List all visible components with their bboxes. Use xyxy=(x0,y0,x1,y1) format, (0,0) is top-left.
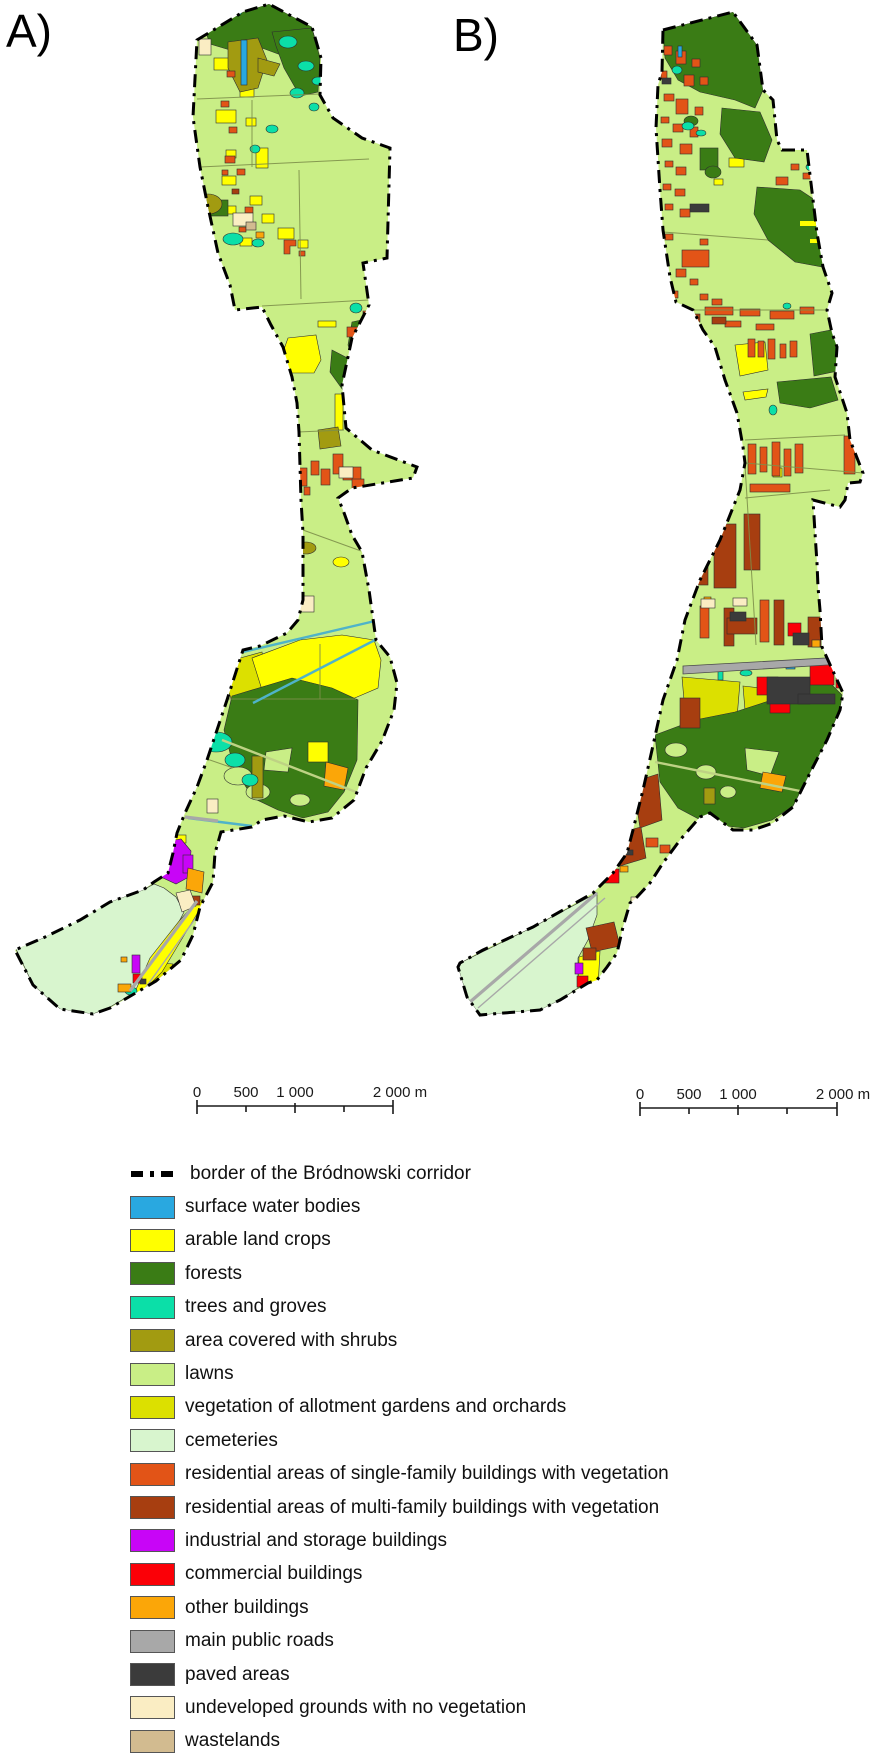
scalebar-b-1000: 1 000 xyxy=(719,1086,757,1103)
legend-item-roads: main public roads xyxy=(130,1624,669,1657)
legend-label: arable land crops xyxy=(185,1229,331,1251)
scalebar-a-0: 0 xyxy=(193,1084,201,1101)
legend-label: residential areas of multi-family buildi… xyxy=(185,1497,659,1519)
legend-swatch-single-family xyxy=(130,1463,175,1486)
legend-label: residential areas of single-family build… xyxy=(185,1463,669,1485)
shrub-in-forest-b xyxy=(704,788,715,804)
scalebar-a-1000: 1 000 xyxy=(276,1084,314,1101)
legend-item-allotment: vegetation of allotment gardens and orch… xyxy=(130,1391,669,1424)
legend-label: cemeteries xyxy=(185,1430,278,1452)
legend-swatch-wastelands xyxy=(130,1730,175,1753)
legend-label: other buildings xyxy=(185,1597,309,1619)
legend-swatch-other-buildings xyxy=(130,1596,175,1619)
legend-swatch-undeveloped xyxy=(130,1696,175,1719)
industrial-patch-b xyxy=(575,963,583,974)
legend-swatch-forest xyxy=(130,1262,175,1285)
legend-item-lawns: lawns xyxy=(130,1357,669,1390)
field-strip-b xyxy=(800,221,828,226)
field-in-forest-a xyxy=(308,742,328,762)
legend-label: industrial and storage buildings xyxy=(185,1530,447,1552)
legend-label: forests xyxy=(185,1263,242,1285)
legend-item-undeveloped: undeveloped grounds with no vegetation xyxy=(130,1691,669,1724)
legend-label: paved areas xyxy=(185,1664,290,1686)
map-legend: border of the Bródnowski corridor surfac… xyxy=(130,1157,669,1758)
legend-item-multi-family: residential areas of multi-family buildi… xyxy=(130,1491,669,1524)
legend-swatch-paved xyxy=(130,1663,175,1686)
scalebar-a: 0 500 1 000 2 000 m xyxy=(193,1084,427,1114)
scalebar-b-2000: 2 000 m xyxy=(816,1086,870,1103)
legend-item-trees: trees and groves xyxy=(130,1291,669,1324)
legend-label: commercial buildings xyxy=(185,1563,362,1585)
legend-item-paved: paved areas xyxy=(130,1658,669,1691)
legend-swatch-industrial xyxy=(130,1529,175,1552)
scalebar-b-500: 500 xyxy=(676,1086,701,1103)
legend-label: lawns xyxy=(185,1363,234,1385)
wasteland-patch-b xyxy=(838,226,847,233)
map-figure: 0 500 1 000 2 000 m 0 500 1 000 2 000 m xyxy=(0,0,872,1130)
lawns-background-b xyxy=(430,0,872,1030)
scalebar-a-500: 500 xyxy=(233,1084,258,1101)
legend-swatch-allotment xyxy=(130,1396,175,1419)
paved-patch-a xyxy=(140,979,146,984)
wasteland-patches-a xyxy=(246,222,256,230)
legend-item-industrial: industrial and storage buildings xyxy=(130,1524,669,1557)
legend-swatch-shrubs xyxy=(130,1329,175,1352)
legend-item-commercial: commercial buildings xyxy=(130,1558,669,1591)
scalebar-b: 0 500 1 000 2 000 m xyxy=(636,1086,870,1116)
map-panel-b xyxy=(430,0,872,1030)
legend-swatch-multi-family xyxy=(130,1496,175,1519)
legend-label: surface water bodies xyxy=(185,1196,360,1218)
legend-swatch-cemetery xyxy=(130,1429,175,1452)
scalebar-a-2000: 2 000 m xyxy=(373,1084,427,1101)
legend-label: area covered with shrubs xyxy=(185,1330,397,1352)
legend-swatch-arable xyxy=(130,1229,175,1252)
border-line-symbol xyxy=(130,1162,180,1185)
legend-swatch-roads xyxy=(130,1630,175,1653)
legend-label: undeveloped grounds with no vegetation xyxy=(185,1697,526,1719)
legend-item-border: border of the Bródnowski corridor xyxy=(130,1157,669,1190)
legend-item-shrubs: area covered with shrubs xyxy=(130,1324,669,1357)
legend-swatch-lawns xyxy=(130,1363,175,1386)
legend-item-single-family: residential areas of single-family build… xyxy=(130,1458,669,1491)
legend-label: main public roads xyxy=(185,1630,334,1652)
legend-item-arable: arable land crops xyxy=(130,1224,669,1257)
legend-item-wastelands: wastelands xyxy=(130,1725,669,1758)
scalebar-b-0: 0 xyxy=(636,1086,644,1103)
legend-swatch-water xyxy=(130,1196,175,1219)
figure-page: { "panels": [ { "id": "A", "label": "A)"… xyxy=(0,0,872,1758)
legend-swatch-commercial xyxy=(130,1563,175,1586)
water-patches-a xyxy=(241,40,247,85)
legend-label: trees and groves xyxy=(185,1296,327,1318)
legend-item-cemetery: cemeteries xyxy=(130,1424,669,1457)
lawns-background-a xyxy=(0,0,440,1030)
legend-label: vegetation of allotment gardens and orch… xyxy=(185,1396,566,1418)
legend-swatch-trees xyxy=(130,1296,175,1319)
legend-item-water: surface water bodies xyxy=(130,1190,669,1223)
legend-label: wastelands xyxy=(185,1730,280,1752)
legend-label: border of the Bródnowski corridor xyxy=(190,1163,471,1185)
legend-item-other-buildings: other buildings xyxy=(130,1591,669,1624)
legend-item-forest: forests xyxy=(130,1257,669,1290)
map-panel-a xyxy=(0,0,440,1030)
